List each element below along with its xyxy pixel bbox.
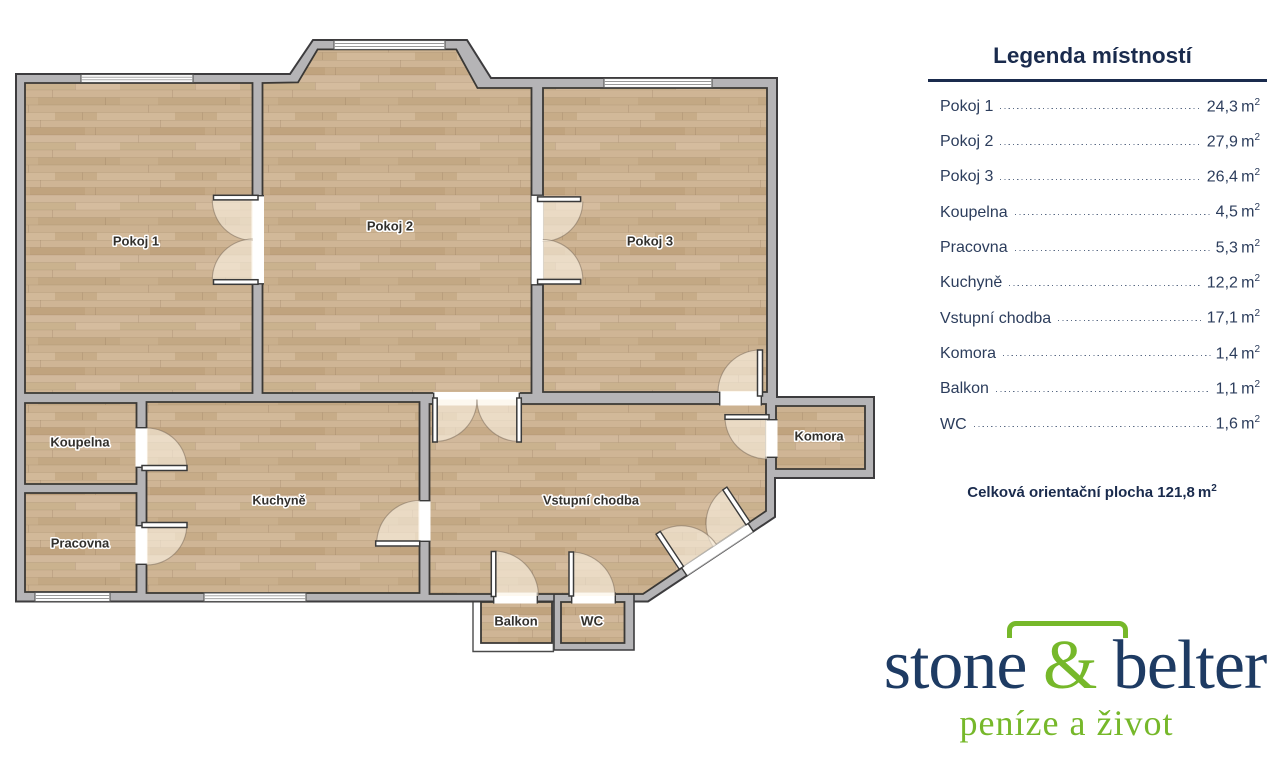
svg-text:Kuchyně: Kuchyně [252,493,305,507]
svg-text:Vstupní chodba: Vstupní chodba [543,492,640,507]
svg-text:Pokoj 3: Pokoj 3 [627,233,673,248]
svg-text:Pokoj 1: Pokoj 1 [113,233,159,248]
svg-text:Komora: Komora [794,428,844,443]
svg-text:Pracovna: Pracovna [51,535,110,550]
svg-text:Pokoj 2: Pokoj 2 [367,218,413,233]
svg-text:Balkon: Balkon [494,613,537,628]
svg-text:Koupelna: Koupelna [50,434,110,449]
svg-text:WC: WC [581,614,604,629]
